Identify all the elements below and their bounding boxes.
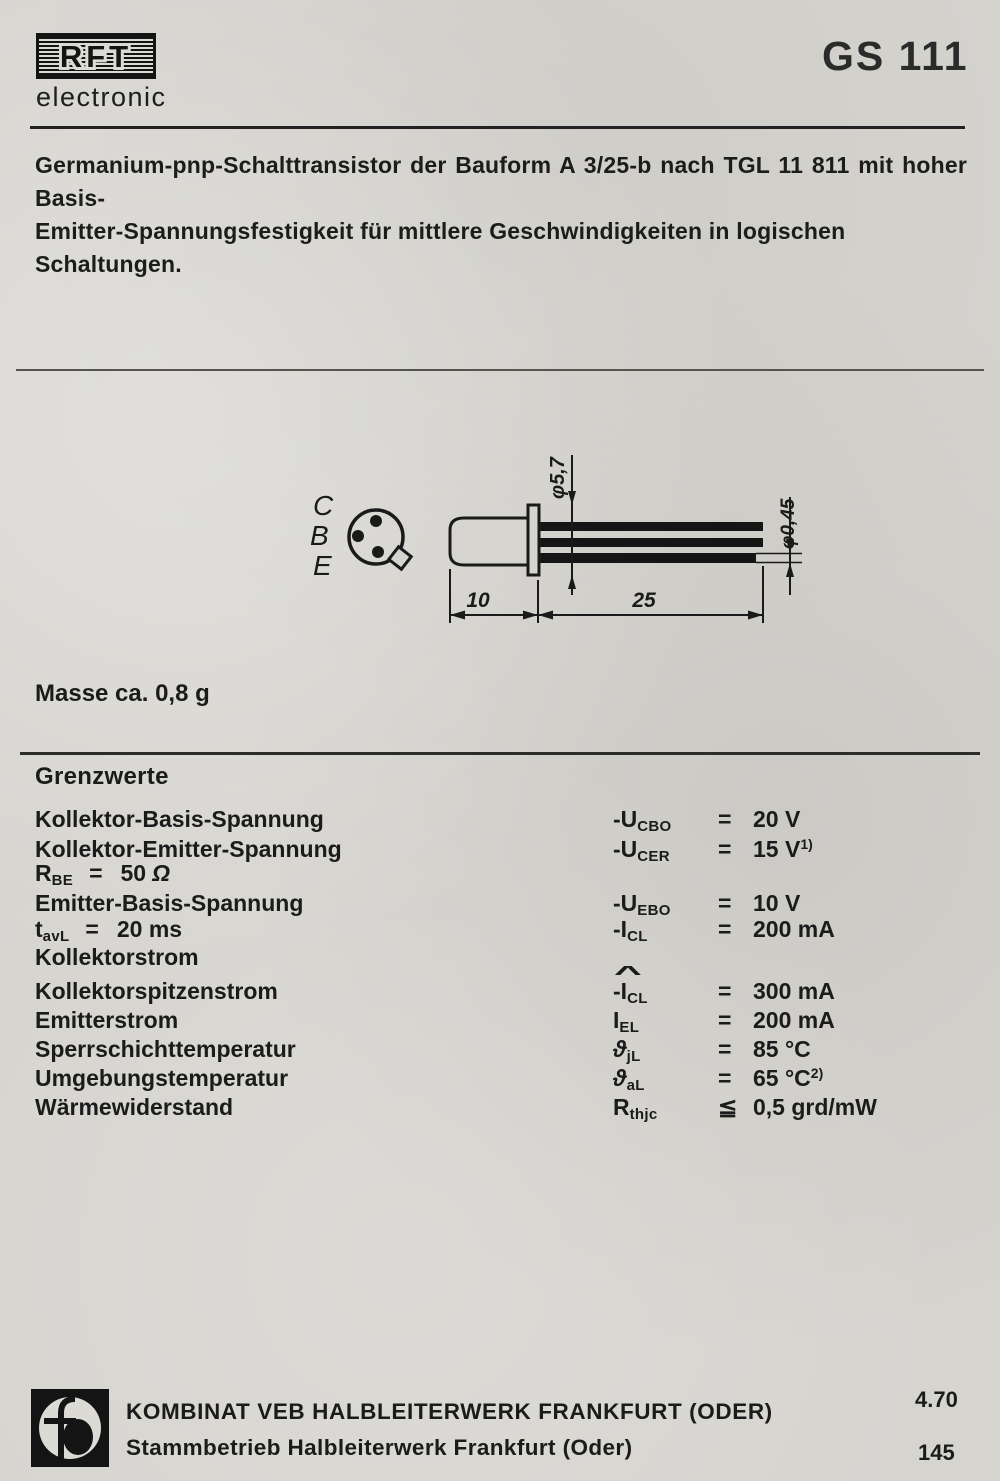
- limit-relation: =: [718, 836, 731, 863]
- mass-note: Masse ca. 0,8 g: [35, 680, 210, 708]
- dim-lead-length-label: 25: [631, 589, 656, 612]
- limit-label: Kollektorspitzenstrom: [35, 978, 278, 1005]
- limit-symbol: ϑaL: [613, 1065, 645, 1094]
- brand-subtitle: electronic: [36, 82, 167, 113]
- pinout-index-tab: [389, 547, 411, 569]
- section-rule-top: [16, 369, 984, 371]
- limit-symbol: ^-ICL: [613, 978, 648, 1007]
- table-row: Kollektorstrom: [0, 944, 1000, 974]
- footer-company-line1: KOMBINAT VEB HALBLEITERWERK FRANKFURT (O…: [126, 1399, 773, 1425]
- limits-rule: [20, 752, 980, 755]
- package-drawing: C B E: [280, 425, 840, 657]
- transistor-side-view: [450, 505, 802, 575]
- limit-value: 300 mA: [753, 978, 835, 1005]
- limit-value: 15 V1): [753, 836, 813, 863]
- part-number: GS 111: [822, 33, 969, 80]
- footer-company-line2: Stammbetrieb Halbleiterwerk Frankfurt (O…: [126, 1435, 632, 1461]
- description-line2: Emitter-Spannungsfestigkeit für mittlere…: [35, 215, 967, 281]
- limit-value: 10 V: [753, 890, 800, 917]
- limit-symbol: -ICL: [613, 916, 648, 945]
- limit-value: 20 V: [753, 806, 800, 833]
- limit-label: Umgebungstemperatur: [35, 1065, 288, 1092]
- limit-label: Kollektor-Basis-Spannung: [35, 806, 324, 833]
- limit-relation: =: [718, 916, 731, 943]
- limit-condition: tavL=20 ms: [35, 916, 182, 945]
- header-rule: [30, 126, 965, 129]
- dim-lead-diameter-label: φ0,45: [778, 498, 799, 549]
- pin-dot-b: [352, 530, 364, 542]
- dim-lengths: 10 25: [450, 566, 763, 623]
- limit-label: Wärmewiderstand: [35, 1094, 233, 1121]
- table-row: Wärmewiderstand Rthjc ≦ 0,5 grd/mW: [0, 1094, 1000, 1124]
- peak-hat-mark: ^: [614, 963, 642, 986]
- lead-extension-lines: [756, 554, 802, 563]
- rft-logo-text: RFT: [60, 39, 132, 74]
- limit-condition: RBE=50Ω: [35, 860, 170, 889]
- limit-relation: =: [718, 1036, 731, 1063]
- transistor-body: [450, 518, 528, 565]
- table-row: Kollektor-Basis-Spannung -UCBO = 20 V: [0, 806, 1000, 836]
- footer-date-code: 4.70: [915, 1387, 958, 1413]
- limit-symbol: -UEBO: [613, 890, 671, 919]
- dim-lead-diameter: φ0,45: [778, 497, 799, 595]
- limit-relation: =: [718, 806, 731, 833]
- limit-value: 85 °C: [753, 1036, 811, 1063]
- limit-label: Emitterstrom: [35, 1007, 178, 1034]
- limit-symbol: ϑjL: [613, 1036, 641, 1065]
- table-row-condition: RBE=50Ω: [0, 860, 1000, 890]
- pin-dot-c: [370, 515, 382, 527]
- limit-value: 200 mA: [753, 916, 835, 943]
- transistor-flange: [528, 505, 539, 575]
- pin-dot-e: [372, 546, 384, 558]
- datasheet-page: RFT electronic GS 111 Germanium-pnp-Scha…: [0, 0, 1000, 1481]
- dim-body-length-label: 10: [466, 589, 490, 612]
- limit-value: 0,5 grd/mW: [753, 1094, 877, 1121]
- description-paragraph: Germanium-pnp-Schalttransistor der Baufo…: [35, 149, 967, 281]
- limit-relation: =: [718, 1065, 731, 1092]
- limit-value: 65 °C2): [753, 1065, 823, 1092]
- rft-logo: RFT: [36, 33, 156, 79]
- limit-label: Emitter-Basis-Spannung: [35, 890, 303, 917]
- halbleiterwerk-logo: [30, 1388, 110, 1468]
- table-row: Umgebungstemperatur ϑaL = 65 °C2): [0, 1065, 1000, 1095]
- limit-label: Sperrschichttemperatur: [35, 1036, 296, 1063]
- limit-symbol: -UCBO: [613, 806, 672, 835]
- limit-relation: =: [718, 890, 731, 917]
- limit-symbol: IEL: [613, 1007, 639, 1036]
- dim-flange-diameter-label: φ5,7: [547, 456, 569, 499]
- table-row-condition: tavL=20 ms -ICL = 200 mA: [0, 916, 1000, 946]
- pin-label-e: E: [313, 550, 332, 581]
- pin-label-b: B: [310, 520, 329, 551]
- limits-title: Grenzwerte: [35, 763, 169, 791]
- description-line1: Germanium-pnp-Schalttransistor der Baufo…: [35, 149, 967, 215]
- limit-relation: =: [718, 978, 731, 1005]
- table-row: Sperrschichttemperatur ϑjL = 85 °C: [0, 1036, 1000, 1066]
- limit-symbol: Rthjc: [613, 1094, 658, 1123]
- limit-label: Kollektor-Emitter-Spannung: [35, 836, 342, 863]
- table-row: Kollektorspitzenstrom ^-ICL = 300 mA: [0, 978, 1000, 1008]
- limit-value: 200 mA: [753, 1007, 835, 1034]
- limit-relation: =: [718, 1007, 731, 1034]
- limit-label: Kollektorstrom: [35, 944, 199, 971]
- pinout-view: C B E: [310, 490, 411, 581]
- limit-relation: ≦: [718, 1094, 737, 1121]
- footer-page-number: 145: [918, 1440, 955, 1466]
- table-row: Emitterstrom IEL = 200 mA: [0, 1007, 1000, 1037]
- pin-label-c: C: [313, 490, 334, 521]
